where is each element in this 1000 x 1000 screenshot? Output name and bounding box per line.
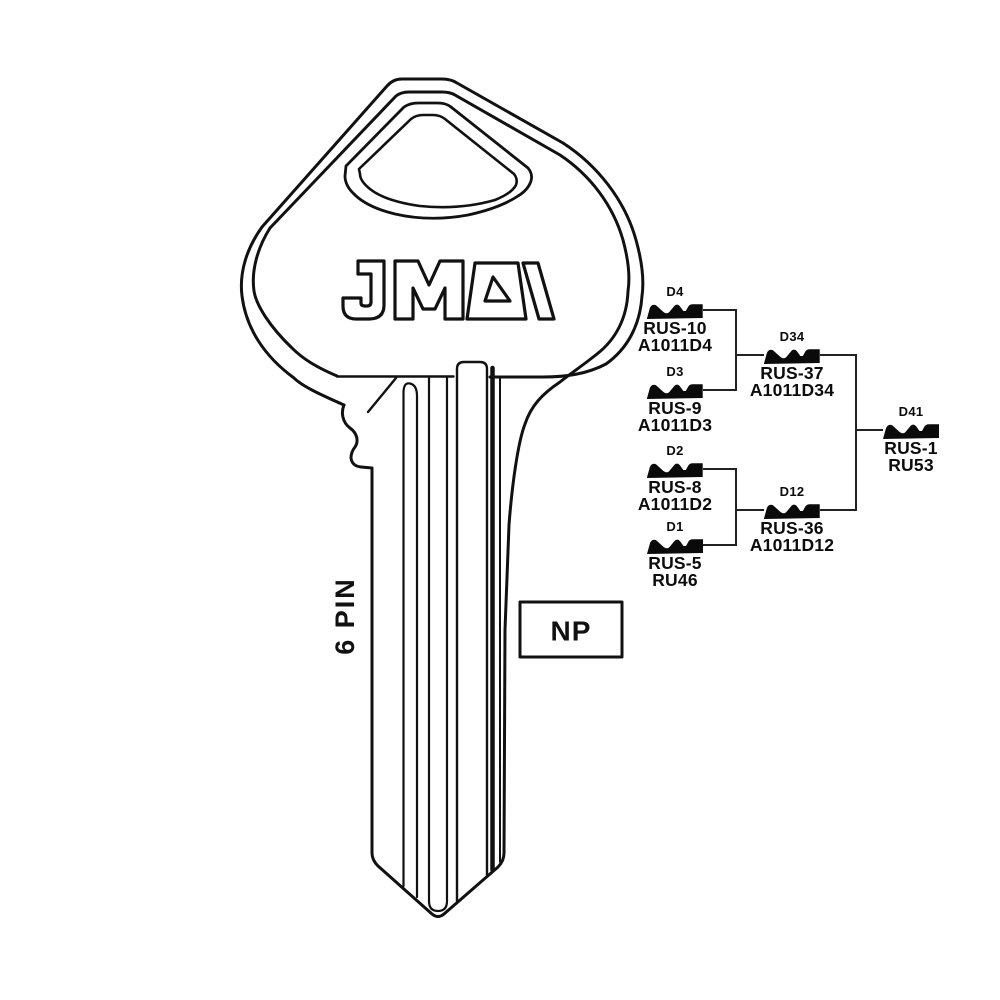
- profile-cross-section-icon: [764, 500, 820, 520]
- profile-node-rus-8: D2 RUS-8 A1011D2: [638, 444, 712, 512]
- profile-code-label: D41: [899, 405, 924, 419]
- profile-code-label: D12: [780, 485, 805, 499]
- logo-letter-a: [467, 263, 526, 319]
- jma-logo: JMA: [343, 261, 554, 319]
- profile-cross-section-icon: [647, 459, 703, 479]
- blade-groove-tower: [457, 362, 487, 901]
- profile-code-label: D2: [666, 444, 683, 458]
- np-label: NP: [551, 616, 592, 647]
- keyblank-cross-ref: RU46: [652, 572, 698, 589]
- logo-slash: [523, 263, 554, 319]
- profile-node-rus-1: D41 RUS-1 RU53: [883, 405, 939, 473]
- keyblank-cross-ref: A1011D12: [750, 537, 834, 554]
- profile-cross-section-icon: [883, 420, 939, 440]
- profile-code-label: D1: [666, 520, 683, 534]
- profile-node-rus-37: D34 RUS-37 A1011D34: [750, 330, 834, 398]
- profile-node-rus-36: D12 RUS-36 A1011D12: [750, 485, 834, 553]
- profile-code-label: D4: [666, 285, 683, 299]
- profile-cross-section-icon: [647, 300, 703, 320]
- key-head-inner-outline-and-blade: [253, 92, 629, 917]
- logo-letter-j: [343, 261, 384, 319]
- blade-groove-arch: [404, 383, 418, 897]
- profile-cross-section-icon: [764, 345, 820, 365]
- keyblank-cross-ref: A1011D34: [750, 382, 834, 399]
- keyblank-cross-ref: A1011D4: [638, 337, 712, 354]
- profile-cross-section-icon: [647, 535, 703, 555]
- key-blank-drawing: JMA 6 PIN NP: [0, 0, 1000, 1000]
- keyblank-cross-ref: A1011D2: [638, 496, 712, 513]
- keyblank-cross-ref: RU53: [888, 457, 934, 474]
- pin-count-label: 6 PIN: [330, 577, 360, 655]
- blade-groove-petal: [429, 377, 447, 911]
- profile-node-rus-9: D3 RUS-9 A1011D3: [638, 365, 712, 433]
- key-blank-catalog-page: JMA 6 PIN NP: [0, 0, 1000, 1000]
- logo-letter-m: [395, 261, 463, 319]
- profile-node-rus-5: D1 RUS-5 RU46: [647, 520, 703, 588]
- profile-node-rus-10: D4 RUS-10 A1011D4: [638, 285, 712, 353]
- profile-cross-section-icon: [647, 380, 703, 400]
- blade-shoulder-diagonal: [368, 378, 396, 412]
- profile-code-label: D34: [780, 330, 805, 344]
- profile-code-label: D3: [666, 365, 683, 379]
- keyblank-cross-ref: A1011D3: [638, 417, 712, 434]
